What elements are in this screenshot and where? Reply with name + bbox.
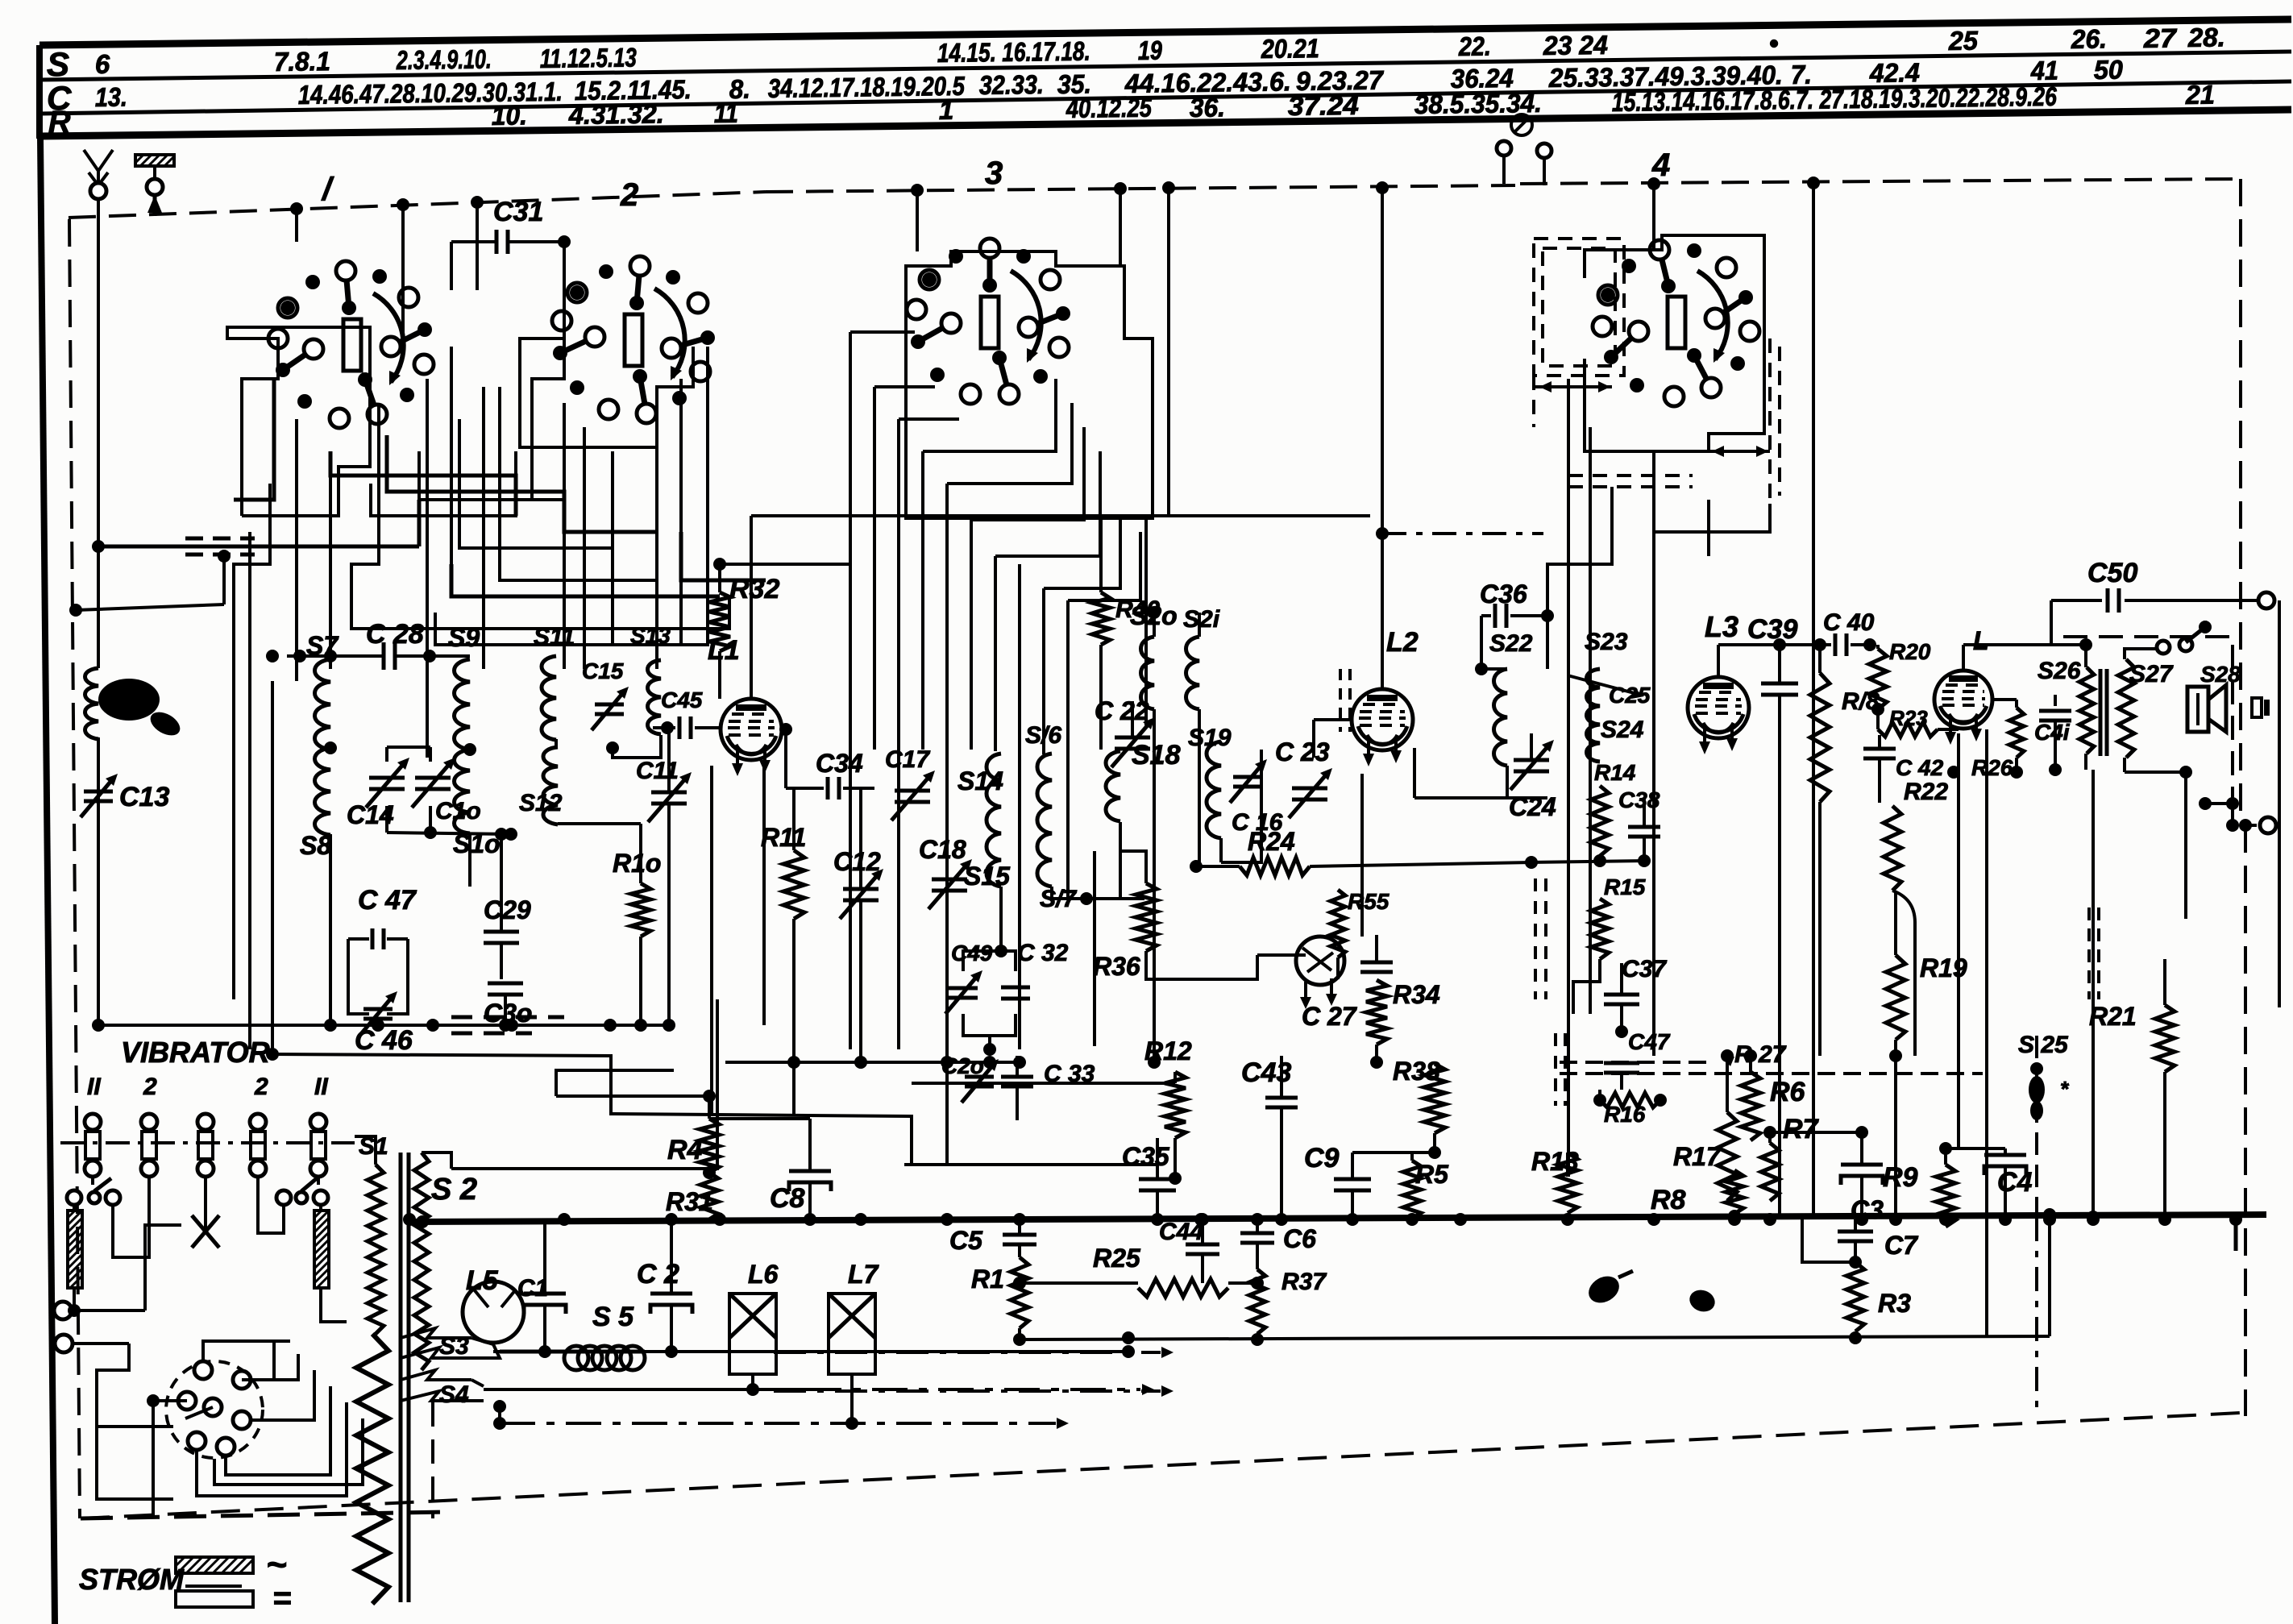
svg-text:C 23: C 23: [1275, 737, 1330, 766]
svg-text:21: 21: [2185, 80, 2215, 110]
svg-text:19: 19: [1138, 35, 1163, 65]
svg-text:R21: R21: [2089, 1002, 2137, 1031]
svg-text:20.21: 20.21: [1261, 33, 1319, 64]
svg-text:C 2: C 2: [637, 1259, 679, 1290]
svg-text:C17: C17: [885, 746, 930, 773]
svg-text:STRØM: STRØM: [79, 1563, 185, 1596]
svg-text:S2i: S2i: [1183, 606, 1220, 633]
svg-text:C 47: C 47: [358, 885, 417, 916]
svg-text:C6: C6: [1283, 1224, 1316, 1253]
svg-text:R37: R37: [1282, 1269, 1327, 1295]
svg-text:R3: R3: [1878, 1289, 1911, 1318]
svg-text:37.24: 37.24: [1288, 90, 1359, 121]
svg-text:S13: S13: [630, 623, 671, 648]
svg-text:C‌11: C‌11: [636, 758, 679, 784]
svg-text:C29: C29: [484, 895, 531, 924]
svg-text:15.13.14.16.17.8.6.7. 27.18.19: 15.13.14.16.17.8.6.7. 27.18.19.3.20.22.2…: [1612, 81, 2058, 117]
svg-text:50: 50: [2094, 55, 2124, 85]
svg-text:22.: 22.: [1458, 31, 1491, 61]
svg-text:6: 6: [95, 49, 110, 79]
svg-text:C‌4i: C‌4i: [2034, 720, 2071, 745]
svg-text:C 42: C 42: [1896, 755, 1944, 780]
svg-text:R14: R14: [1594, 760, 1636, 785]
svg-text:2: 2: [254, 1074, 268, 1100]
svg-text:26.: 26.: [2071, 23, 2107, 54]
svg-text:C39: C39: [1747, 614, 1797, 645]
svg-text:S: S: [47, 45, 69, 83]
svg-text:S12: S12: [519, 790, 563, 816]
svg-text:C 27: C 27: [1302, 1002, 1358, 1031]
svg-text:L3: L3: [1705, 610, 1738, 643]
svg-text:2.3.4.9.10.: 2.3.4.9.10.: [396, 44, 492, 75]
svg-text:C 46: C 46: [355, 1025, 413, 1056]
svg-text:R6: R6: [1770, 1077, 1806, 1107]
svg-text:=: =: [272, 1580, 291, 1616]
svg-text:C35: C35: [1122, 1142, 1170, 1171]
svg-text:C31: C31: [493, 197, 543, 227]
svg-text:C24: C24: [1509, 792, 1556, 821]
svg-text:S8: S8: [300, 831, 331, 860]
svg-text:S2‌6: S2‌6: [2038, 658, 2081, 684]
svg-text:14.15. 16.17.18.: 14.15. 16.17.18.: [937, 36, 1090, 68]
svg-text:25: 25: [1948, 26, 1979, 56]
svg-text:L: L: [1973, 626, 1989, 655]
svg-text:4.31.32.: 4.31.32.: [568, 98, 664, 130]
svg-text:S15: S15: [964, 862, 1011, 891]
svg-text:VIBRATOR: VIBRATOR: [121, 1036, 270, 1069]
svg-text:23 24: 23 24: [1543, 30, 1608, 60]
svg-text:R15: R15: [1604, 874, 1646, 899]
svg-text:R11: R11: [761, 823, 806, 852]
svg-text:C9: C9: [1304, 1143, 1340, 1173]
svg-text:C45: C45: [661, 687, 703, 712]
svg-text:S 2: S 2: [431, 1173, 477, 1207]
svg-text:13.: 13.: [95, 81, 127, 112]
svg-text:S 5: S 5: [592, 1302, 634, 1332]
svg-text:R1o: R1o: [613, 849, 661, 878]
svg-text:1: 1: [939, 95, 954, 125]
svg-text:C‌7: C‌7: [1884, 1231, 1919, 1260]
svg-text:S11: S11: [534, 624, 575, 650]
svg-text:S4: S4: [439, 1381, 469, 1408]
svg-text:27: 27: [2143, 23, 2178, 53]
svg-text:11: 11: [714, 98, 738, 128]
svg-text:C 40: C 40: [1823, 609, 1875, 636]
svg-text:R31: R31: [666, 1187, 713, 1216]
svg-text:10.: 10.: [492, 100, 527, 131]
svg-text:C18: C18: [919, 835, 966, 864]
svg-text:2: 2: [620, 177, 638, 213]
svg-text:C43: C43: [1241, 1057, 1291, 1088]
svg-text:C34: C34: [816, 749, 863, 778]
svg-text:C37: C37: [1622, 956, 1667, 982]
svg-text:R25: R25: [1093, 1244, 1141, 1273]
svg-text:R24: R24: [1248, 827, 1295, 856]
svg-text:40.12.25: 40.12.25: [1065, 93, 1153, 123]
svg-text:C12: C12: [833, 847, 881, 876]
svg-text:C‌49: C‌49: [951, 941, 993, 966]
svg-text:II: II: [87, 1074, 101, 1100]
svg-text:C13: C13: [119, 782, 169, 812]
svg-text:C4‌7: C4‌7: [1628, 1029, 1671, 1054]
svg-text:R2‌0: R2‌0: [1889, 639, 1931, 664]
svg-text:S 2‌5: S 2‌5: [2018, 1032, 2069, 1058]
svg-text:II: II: [314, 1074, 328, 1100]
svg-text:S24: S24: [1601, 716, 1644, 743]
svg-text:R19: R19: [1920, 953, 1967, 982]
svg-text:R1: R1: [971, 1265, 1004, 1294]
svg-text:7.8.1: 7.8.1: [274, 46, 330, 77]
svg-text:S2‌8: S2‌8: [2200, 662, 2241, 687]
svg-text:R26: R26: [1971, 755, 2013, 780]
svg-text:R34: R34: [1393, 980, 1440, 1009]
svg-text:C1o: C1o: [435, 798, 481, 824]
svg-text:R: R: [48, 106, 71, 139]
svg-text:C5: C5: [949, 1226, 983, 1255]
svg-text:R7: R7: [1783, 1114, 1820, 1144]
svg-text:C14: C14: [347, 800, 394, 829]
svg-text:R36: R36: [1093, 952, 1140, 981]
svg-text:L7: L7: [848, 1260, 880, 1289]
svg-text:28.: 28.: [2187, 22, 2225, 52]
svg-text:C 22: C 22: [1095, 696, 1149, 725]
svg-text:C 32: C 32: [1017, 940, 1069, 966]
svg-text:R22: R22: [1904, 779, 1948, 805]
svg-text:R9: R9: [1883, 1162, 1918, 1193]
svg-text:R17: R17: [1673, 1142, 1722, 1171]
svg-text:C36: C36: [1480, 579, 1527, 608]
svg-text:R32: R32: [729, 574, 779, 604]
svg-text:L2: L2: [1386, 627, 1419, 658]
svg-text:L6: L6: [748, 1260, 779, 1289]
svg-text:S22: S22: [1489, 630, 1533, 657]
svg-text:R/8: R/8: [1842, 688, 1880, 715]
svg-text:•: •: [1769, 28, 1779, 58]
svg-text:~: ~: [266, 1545, 287, 1585]
svg-text:34.12.17.18.19.20.5: 34.12.17.18.19.20.5: [768, 71, 966, 103]
svg-text:S18: S18: [1132, 740, 1181, 770]
svg-text:R8: R8: [1651, 1185, 1686, 1215]
svg-text:S9: S9: [448, 623, 480, 652]
svg-text:2: 2: [143, 1074, 157, 1100]
svg-text:36.: 36.: [1190, 92, 1225, 123]
svg-text:C15: C15: [582, 658, 624, 683]
svg-text:32.33.: 32.33.: [979, 69, 1044, 100]
svg-text:S1o: S1o: [453, 829, 501, 858]
svg-text:R55: R55: [1348, 889, 1390, 914]
svg-text:C50: C50: [2087, 558, 2137, 588]
svg-text:R12: R12: [1144, 1036, 1192, 1065]
svg-text:S/6: S/6: [1025, 722, 1061, 749]
svg-text:11.12.5.13: 11.12.5.13: [540, 42, 637, 73]
svg-text:3: 3: [985, 156, 1003, 191]
svg-text:L1: L1: [708, 635, 740, 666]
svg-text:R 2‌7: R 2‌7: [1734, 1041, 1787, 1068]
